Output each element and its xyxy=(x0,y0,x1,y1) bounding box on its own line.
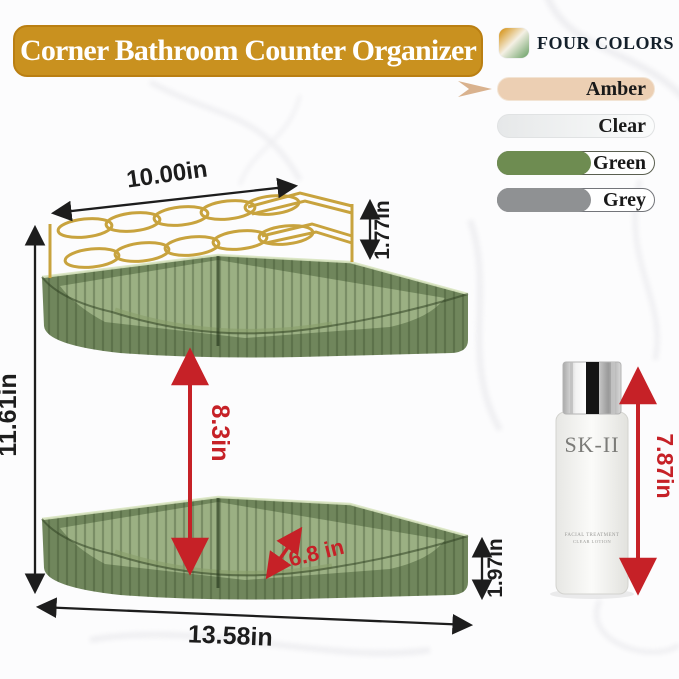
dim-tier-gap-label: 8.3in xyxy=(206,405,234,462)
title-banner: Corner Bathroom Counter Organizer xyxy=(13,25,483,77)
dim-tray-height-label: 1.97in xyxy=(484,538,507,598)
dim-total-height-label: 11.61in xyxy=(0,373,22,456)
top-tray xyxy=(42,255,468,358)
bottle-brand: SK-II xyxy=(564,432,619,457)
swatch-grey: Grey xyxy=(497,188,655,212)
swatch-amber-label: Amber xyxy=(586,79,654,99)
swatch-green-label: Green xyxy=(593,153,654,173)
four-colors-heading: FOUR COLORS xyxy=(537,33,674,54)
bottle-label-line2: CLEAR LOTION xyxy=(573,539,611,544)
arrow-pointer-icon xyxy=(458,81,492,97)
swatch-clear: Clear xyxy=(497,114,655,138)
swatch-amber: Amber xyxy=(497,77,655,101)
page-title: Corner Bathroom Counter Organizer xyxy=(20,34,476,68)
gradient-swatch-icon xyxy=(499,28,529,58)
organizer-product xyxy=(42,193,468,600)
swatch-grey-label: Grey xyxy=(603,190,654,210)
reference-bottle: SK-II FACIAL TREATMENT CLEAR LOTION xyxy=(550,362,634,599)
swatch-clear-label: Clear xyxy=(598,116,654,136)
dim-rack-height-label: 1.77in xyxy=(371,200,394,260)
dim-base-width-label: 13.58in xyxy=(187,620,273,652)
swatch-green-fill xyxy=(497,151,591,175)
four-colors-header: FOUR COLORS xyxy=(499,28,674,58)
color-swatch-list: Amber Clear Green Grey xyxy=(497,77,655,225)
bottom-tray xyxy=(42,497,468,600)
dim-top-width-label: 10.00in xyxy=(125,156,209,194)
bottle-label-line1: FACIAL TREATMENT xyxy=(565,533,620,538)
swatch-grey-fill xyxy=(497,188,591,212)
swatch-green: Green xyxy=(497,151,655,175)
dim-bottle-height-label: 7.87in xyxy=(652,433,678,498)
